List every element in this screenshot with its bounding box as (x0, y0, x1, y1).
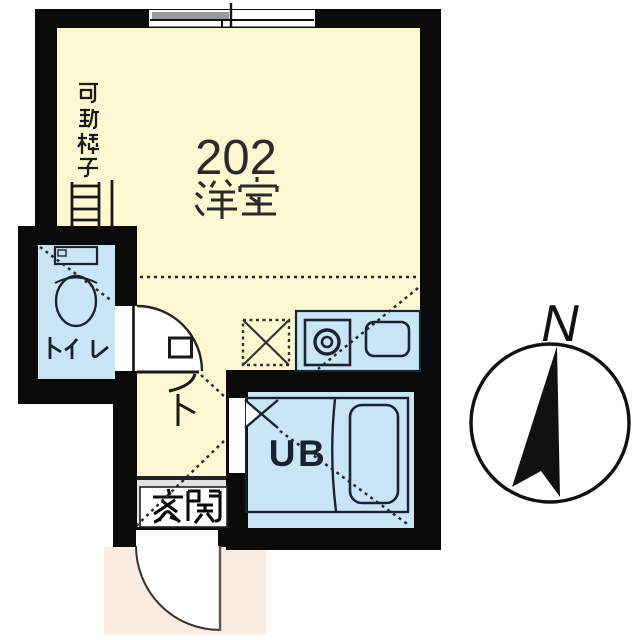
svg-text:UB: UB (269, 433, 327, 474)
svg-text:N: N (541, 295, 579, 353)
svg-text:202: 202 (195, 131, 277, 185)
